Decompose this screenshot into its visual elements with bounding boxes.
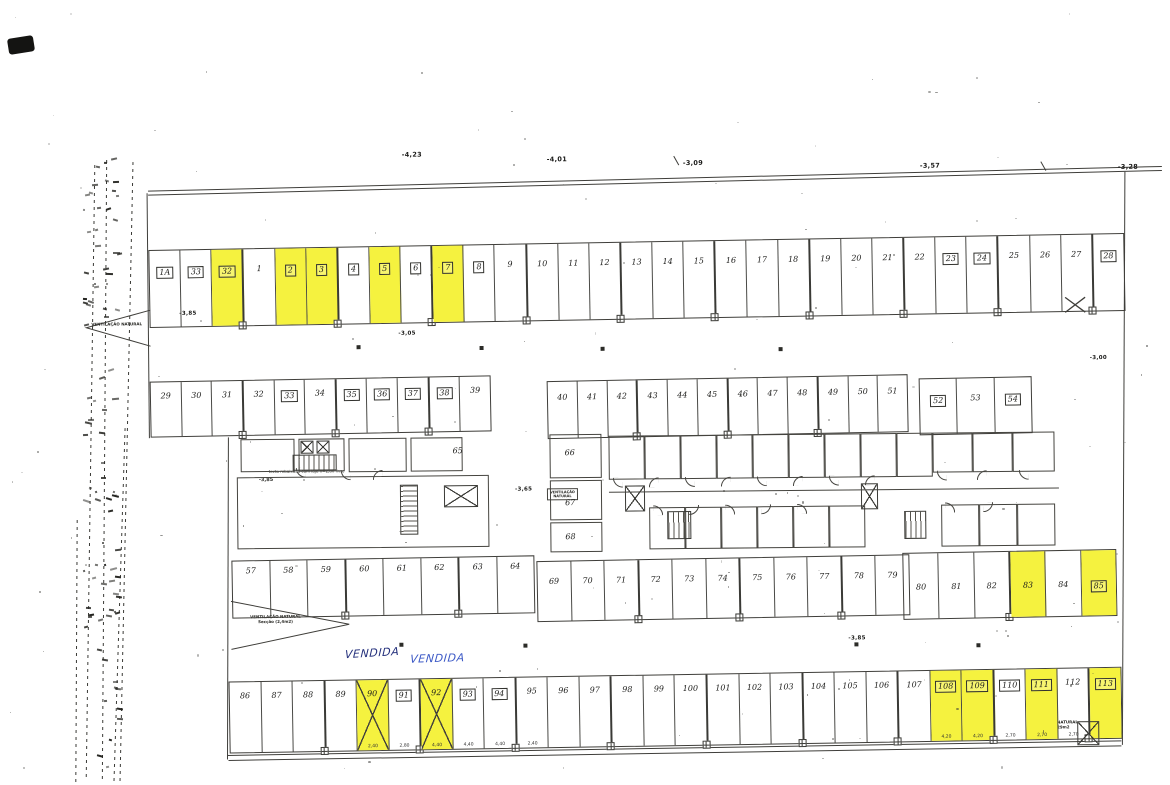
stall-number: 87 [271, 692, 281, 700]
stairs-icon [400, 485, 418, 535]
scan-noise [104, 162, 108, 164]
parking-stall: 12 [589, 243, 622, 320]
storage-room [788, 434, 824, 478]
stall-number: 111 [1030, 679, 1051, 691]
parking-stall: 902,40 [357, 680, 390, 751]
stall-number: 24 [974, 252, 990, 264]
stall-number: 73 [684, 575, 694, 583]
stall-number: 40 [557, 394, 567, 402]
stall-number: 104 [811, 683, 826, 691]
stall-number: 71 [616, 576, 626, 584]
stall-number: 6 [410, 262, 421, 274]
stall-number: 79 [887, 571, 897, 579]
elevation-label: -4,23 [402, 151, 422, 159]
parking-stall: 33 [180, 250, 212, 327]
stall-number: 38 [436, 387, 452, 399]
scan-noise [723, 490, 725, 491]
stall-number: 102 [747, 684, 762, 692]
scan-noise [85, 564, 87, 566]
parking-stall: 50 [848, 376, 879, 433]
scan-noise [1101, 738, 1102, 739]
stall-number: 18 [788, 256, 798, 264]
scan-noise [1015, 218, 1017, 220]
parking-row-CL: 5758596061626364 [231, 555, 535, 618]
parking-stall: 22 [904, 237, 936, 314]
storage-room [972, 432, 1012, 472]
scan-noise [374, 468, 376, 470]
elevation-label: -3,00 [1090, 355, 1107, 361]
parking-stall: 64 [497, 556, 534, 613]
stall-number: 72 [650, 576, 660, 584]
scan-noise [944, 462, 946, 463]
stall-number: 77 [819, 573, 829, 581]
parking-stall: 5 [369, 247, 401, 324]
parking-stall: 45 [697, 379, 729, 436]
parking-stall: 952,40 [516, 677, 549, 748]
column-marker [976, 643, 980, 647]
stall-number: 100 [683, 685, 698, 693]
parking-stall: 61 [383, 558, 421, 615]
parking-stall: 74 [706, 558, 742, 618]
stall-dimension: 2,70 [1027, 733, 1058, 739]
parking-stall: 43 [638, 380, 669, 437]
parking-stall: 35 [336, 379, 368, 434]
scan-noise [894, 737, 895, 738]
scan-noise [37, 451, 39, 453]
scan-noise [912, 386, 914, 388]
storage-room [410, 437, 462, 471]
stall-number: 81 [951, 583, 961, 591]
parking-stall: 97 [579, 676, 613, 747]
parking-stall: 20 [841, 238, 873, 315]
storage-room [550, 480, 602, 520]
elevator-shaft-icon [300, 441, 313, 454]
scan-noise [1066, 164, 1068, 165]
parking-stall: 59 [307, 560, 346, 617]
stall-number: 46 [738, 390, 748, 398]
scan-noise [368, 761, 370, 763]
stall-number: 70 [582, 577, 592, 585]
parking-stall: 80 [903, 553, 940, 619]
stall-number: 54 [1005, 393, 1021, 405]
stall-number: 2 [285, 264, 296, 276]
scan-noise [996, 630, 997, 632]
stall-number: 25 [1009, 252, 1019, 260]
elevation-label: -3,85 [848, 635, 865, 641]
stall-number: 52 [930, 395, 946, 407]
parking-stall: 62 [421, 558, 460, 615]
stall-number: 17 [757, 256, 767, 264]
stall-dimension: 2,40 [358, 744, 389, 750]
stall-dimension: 4,40 [422, 743, 453, 749]
stall-number: 103 [778, 683, 793, 691]
parking-stall: 28 [1093, 234, 1124, 311]
stall-dimension: 4,40 [453, 742, 484, 748]
parking-stall: 36 [367, 378, 399, 433]
scan-noise [802, 501, 804, 503]
stall-number: 85 [1091, 580, 1107, 592]
scanned-floor-plan-page: -4,23 -4,01 -3,09 -3,57 -3,28 -3,85 -3,0… [0, 0, 1170, 785]
parking-row-CR: 808182838485 [902, 549, 1117, 620]
stall-number: 108 [935, 680, 956, 692]
parking-stall: 26 [1030, 235, 1062, 312]
parking-stall: 104 [803, 673, 836, 744]
storage-room [680, 435, 716, 479]
stall-number: 44 [677, 391, 687, 399]
scan-noise [95, 228, 98, 230]
stall-number: 9 [507, 261, 512, 269]
storage-room [549, 434, 601, 478]
stall-number: 90 [367, 690, 377, 698]
parking-stall: 105 [835, 672, 868, 743]
scan-noise [101, 462, 105, 464]
parking-stall: 103 [770, 673, 804, 744]
column-marker [854, 642, 858, 646]
elevator-shaft-icon [1077, 721, 1099, 745]
scan-noise [1002, 508, 1004, 509]
parking-stall: 13 [621, 242, 653, 319]
scan-noise [94, 283, 96, 285]
parking-stall: 98 [612, 676, 645, 747]
parking-stall: 46 [728, 378, 759, 435]
stall-dimension: 2,70 [995, 733, 1026, 739]
scan-noise [818, 570, 820, 571]
scan-noise [104, 700, 107, 702]
parking-row-D: 86878889902,40912,80924,40934,40944,4095… [229, 667, 1123, 754]
stall-number: 10 [537, 260, 547, 268]
scan-noise [478, 129, 479, 131]
stall-number: 45 [707, 391, 717, 399]
stall-number: 48 [797, 389, 807, 397]
parking-stall: 2 [275, 248, 307, 325]
stairs-icon [904, 511, 926, 539]
storage-room [348, 438, 406, 473]
parking-stall: 30 [181, 382, 213, 437]
elevation-label: -3,09 [683, 159, 703, 167]
parking-stall: 96 [548, 677, 581, 748]
scan-noise [454, 421, 456, 423]
stall-number: 59 [321, 566, 331, 574]
parking-stall: 40 [548, 382, 579, 439]
stall-number: 27 [1071, 251, 1081, 259]
parking-stall: 83 [1010, 551, 1047, 617]
stall-number: 86 [240, 692, 250, 700]
stall-number: 89 [335, 691, 345, 699]
stall-number: 37 [405, 388, 421, 400]
stall-number: 80 [916, 583, 926, 591]
scan-noise [116, 194, 119, 196]
parking-stall: 85 [1081, 550, 1117, 616]
stall-number: 109 [966, 680, 987, 692]
scan-noise [88, 419, 94, 421]
storage-room [1017, 503, 1055, 545]
stall-number: 97 [590, 686, 600, 694]
elevation-label: -4,01 [547, 155, 567, 163]
storage-room [829, 505, 865, 547]
stall-number: 93 [460, 688, 476, 700]
scan-noise [935, 92, 937, 94]
scan-noise [104, 316, 109, 318]
stall-number: 88 [303, 691, 313, 699]
scan-noise [513, 164, 515, 166]
stall-number: 69 [549, 578, 559, 586]
parking-stall: 82 [974, 552, 1012, 618]
storage-room [608, 435, 644, 479]
scan-noise [1007, 635, 1009, 637]
scan-noise [39, 591, 41, 593]
parking-stall: 19 [810, 239, 842, 316]
stall-number: 58 [283, 567, 293, 575]
parking-stall: 42 [607, 380, 639, 437]
parking-stall: 51 [878, 375, 908, 432]
scan-noise [496, 524, 498, 526]
parking-stall: 84 [1046, 551, 1083, 617]
scan-noise [83, 209, 86, 211]
parking-stall: 87 [261, 681, 294, 752]
parking-row-BR: 525354 [919, 376, 1033, 435]
scan-noise [352, 338, 353, 340]
scan-noise [114, 610, 116, 612]
scan-noise [815, 145, 816, 147]
parking-stall: 101 [707, 674, 740, 745]
stall-number: 63 [473, 563, 483, 571]
scan-noise [83, 298, 87, 300]
parking-stall: 54 [994, 377, 1031, 433]
scan-noise [160, 535, 162, 536]
stairs-icon [667, 511, 691, 539]
scan-noise [101, 477, 106, 479]
parking-stall: 32 [212, 249, 245, 326]
stall-number: 34 [315, 389, 325, 397]
stall-number: 30 [191, 392, 201, 400]
stall-number: 47 [767, 390, 777, 398]
scan-noise [1001, 766, 1003, 768]
parking-stall: 53 [957, 378, 995, 434]
storage-room [240, 439, 294, 473]
stall-number: 16 [726, 257, 736, 265]
parking-stall: 912,80 [388, 679, 422, 750]
parking-stall: 34 [305, 379, 338, 434]
parking-stall: 71 [604, 560, 640, 620]
stall-number: 20 [851, 255, 861, 263]
scan-noise [200, 320, 201, 322]
stall-number: 74 [718, 575, 728, 583]
stall-number: 92 [431, 689, 441, 697]
scan-noise [995, 695, 997, 697]
scan-noise [1117, 621, 1119, 623]
parking-stall: 1102,70 [994, 669, 1027, 740]
elevator-shaft-icon [316, 440, 329, 453]
stall-number: 96 [558, 687, 568, 695]
elevator-shaft-icon [861, 483, 878, 509]
parking-stall: 33 [274, 380, 306, 435]
parking-stall: 1112,70 [1026, 669, 1059, 740]
stall-number: 113 [1095, 678, 1116, 690]
column-marker [357, 345, 361, 349]
scan-noise [109, 608, 114, 610]
parking-stall: 3 [306, 248, 339, 325]
parking-stall: 21 [872, 238, 905, 315]
parking-stall: 88 [293, 681, 327, 752]
scan-noise [375, 232, 376, 234]
stall-number: 42 [617, 393, 627, 401]
stall-number: 1A [156, 267, 173, 279]
scan-noise [87, 230, 91, 232]
scan-noise [88, 616, 92, 618]
stall-number: 35 [343, 389, 359, 401]
parking-stall: 8 [464, 245, 496, 322]
parking-stall: 29 [151, 382, 183, 437]
stall-number: 50 [858, 388, 868, 396]
scan-noise [112, 397, 119, 399]
elevator-shaft-icon [444, 485, 478, 507]
scan-noise [196, 171, 197, 172]
scan-noise [108, 738, 111, 740]
ventilation-label: VENTILAÇÃO NATURAL [91, 322, 142, 327]
stall-number: 33 [188, 266, 204, 278]
ventilation-text: VENTILAÇÃO NATURAL [91, 321, 142, 326]
parking-stall: 1A [149, 250, 181, 327]
stall-number: 82 [987, 582, 997, 590]
stall-number: 57 [246, 567, 256, 575]
parking-stall: 77 [808, 556, 844, 616]
stall-number: 32 [253, 391, 263, 399]
parking-stall: 9 [495, 244, 528, 321]
stall-number: 36 [374, 388, 390, 400]
stall-number: 7 [442, 262, 453, 274]
scan-noise [96, 165, 100, 167]
elevator-shaft-icon [625, 485, 645, 511]
scan-noise [158, 376, 160, 377]
stall-number: 95 [527, 687, 537, 695]
stall-dimension: 4,20 [931, 734, 962, 740]
stall-number: 75 [752, 574, 762, 582]
stall-number: 21 [882, 254, 892, 262]
parking-stall: 78 [842, 556, 877, 616]
storage-room [860, 433, 896, 477]
stall-number: 78 [854, 572, 864, 580]
parking-stall: 89 [325, 680, 358, 751]
stall-number: 51 [887, 387, 897, 395]
scan-noise [265, 219, 266, 221]
parking-stall: 70 [571, 561, 606, 621]
storage-room [1012, 431, 1054, 471]
parking-stall: 14 [652, 242, 684, 319]
storage-room [932, 432, 972, 472]
stall-number: 94 [491, 688, 507, 700]
scan-noise [117, 707, 123, 709]
parking-stall: 15 [683, 241, 716, 318]
stall-number: 15 [694, 257, 704, 265]
scan-noise [86, 607, 91, 609]
scan-noise [417, 274, 418, 276]
stall-number: 23 [943, 253, 959, 265]
parking-stall: 47 [758, 377, 789, 434]
stall-number: 76 [786, 573, 796, 581]
stall-number: 49 [828, 389, 838, 397]
scan-noise [113, 181, 119, 183]
scan-noise [102, 409, 107, 411]
stall-number: 53 [970, 394, 980, 402]
elevation-label: -3,28 [1118, 163, 1138, 171]
parking-stall: 63 [459, 557, 497, 614]
scan-noise [354, 424, 355, 426]
scan-noise [1141, 374, 1142, 376]
parking-stall: 1084,20 [930, 670, 963, 741]
scan-noise [295, 565, 297, 567]
vendida-handwriting: VENDIDA [410, 651, 466, 666]
parking-stall: 11 [558, 243, 590, 320]
column-marker [779, 347, 783, 351]
parking-stall: 44 [668, 379, 699, 436]
stall-number: 98 [622, 686, 632, 694]
floor-plan: -4,23 -4,01 -3,09 -3,57 -3,28 -3,85 -3,0… [0, 0, 1170, 785]
scan-noise [956, 708, 958, 710]
scan-noise [997, 157, 999, 158]
parking-stall: 69 [537, 561, 572, 621]
scan-noise [455, 388, 456, 389]
parking-stall: 31 [212, 381, 245, 436]
stall-number: 4 [348, 263, 359, 275]
stall-number: 107 [906, 681, 921, 689]
column-marker [480, 346, 484, 350]
stall-number: 84 [1058, 581, 1068, 589]
scan-noise [807, 694, 808, 695]
storage-room [896, 433, 932, 477]
elevation-label: -3,05 [398, 331, 415, 337]
scan-noise [893, 254, 895, 256]
scan-noise [1124, 442, 1126, 443]
parking-stall: 944,40 [484, 678, 518, 749]
scan-noise [226, 460, 227, 462]
scan-noise [1005, 630, 1006, 632]
parking-stall: 48 [788, 377, 820, 434]
scan-noise [524, 138, 526, 140]
stall-number: 60 [359, 565, 369, 573]
parking-stall: 7 [432, 246, 464, 323]
parking-stall: 60 [346, 559, 384, 616]
storage-room [550, 522, 602, 552]
parking-stall: 58 [270, 560, 308, 617]
scan-noise [849, 679, 850, 680]
stall-dimension: 2,40 [517, 741, 548, 747]
storage-room [752, 434, 788, 478]
parking-stall: 106 [866, 671, 900, 742]
stall-number: 3 [316, 264, 327, 276]
stall-number: 61 [397, 565, 407, 573]
column-marker [601, 347, 605, 351]
scan-noise [734, 368, 736, 370]
parking-stall: 38 [429, 377, 461, 432]
column-marker [399, 643, 403, 647]
parking-stall: 76 [774, 557, 809, 617]
scan-noise [585, 198, 587, 200]
scan-noise [101, 582, 107, 584]
stall-number: 11 [568, 260, 578, 268]
parking-stall: 6 [400, 246, 433, 323]
stall-number: 99 [654, 685, 664, 693]
scan-noise [740, 395, 742, 397]
parking-stall: 73 [673, 559, 708, 619]
storage-room [824, 433, 860, 477]
parking-stall: 72 [639, 560, 674, 620]
stall-number: 33 [281, 390, 297, 402]
scan-noise [243, 525, 244, 527]
stall-number: 101 [715, 684, 730, 692]
scan-noise [303, 479, 305, 481]
scan-noise [563, 767, 564, 769]
stall-number: 41 [587, 393, 597, 401]
